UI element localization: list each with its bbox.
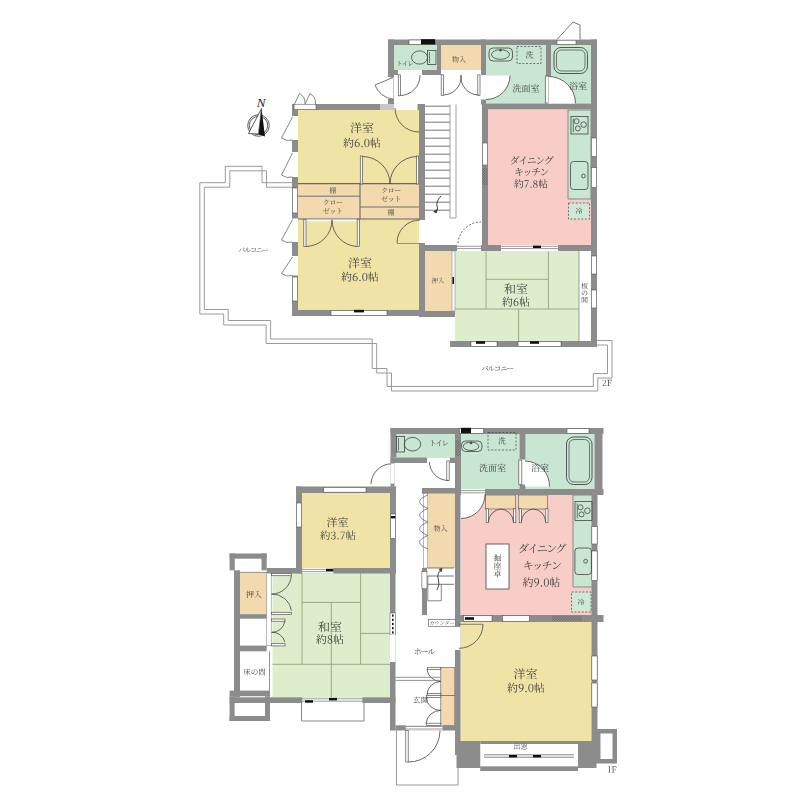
svg-text:N: N <box>256 95 267 110</box>
